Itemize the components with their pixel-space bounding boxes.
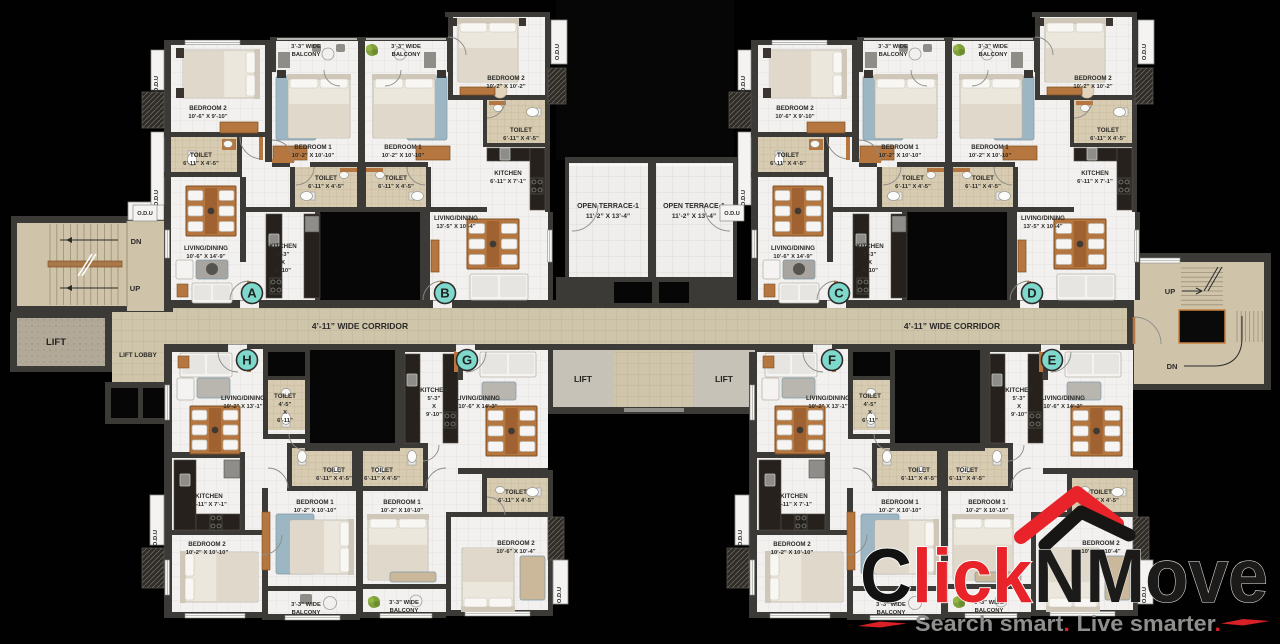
svg-text:5’-3”: 5’-3”	[1013, 396, 1026, 402]
svg-text:B: B	[440, 286, 449, 301]
svg-text:O.D.U: O.D.U	[738, 530, 744, 546]
svg-text:BALCONY: BALCONY	[292, 610, 321, 616]
svg-text:KITCHEN: KITCHEN	[195, 493, 223, 500]
svg-text:O.D.U: O.D.U	[555, 44, 561, 60]
svg-text:O.D.U: O.D.U	[154, 190, 160, 206]
svg-text:KITCHEN: KITCHEN	[420, 387, 448, 394]
svg-text:10’-6” X 14’-3”: 10’-6” X 14’-3”	[1043, 404, 1082, 410]
svg-text:TOILET: TOILET	[371, 467, 393, 474]
svg-text:3’-3” WIDE: 3’-3” WIDE	[878, 44, 908, 50]
svg-text:Search smart. Live smarter.: Search smart. Live smarter.	[915, 611, 1221, 636]
svg-text:BEDROOM 1: BEDROOM 1	[881, 499, 919, 506]
svg-text:10’-2” X 10’-10”: 10’-2” X 10’-10”	[969, 153, 1012, 159]
svg-text:F: F	[828, 353, 836, 368]
svg-text:BEDROOM 2: BEDROOM 2	[776, 105, 814, 112]
svg-text:D: D	[1027, 286, 1036, 301]
svg-text:6’-11” X 4’-5”: 6’-11” X 4’-5”	[183, 161, 219, 167]
svg-text:TOILET: TOILET	[1097, 127, 1119, 134]
svg-text:X: X	[1017, 404, 1021, 410]
svg-text:LIFT: LIFT	[574, 374, 593, 384]
svg-text:10’-6” X 14’-9”: 10’-6” X 14’-9”	[773, 254, 812, 260]
svg-text:X: X	[283, 410, 287, 416]
svg-text:O.D.U: O.D.U	[557, 587, 563, 603]
svg-text:UP: UP	[1165, 287, 1175, 296]
svg-text:BALCONY: BALCONY	[979, 52, 1008, 58]
svg-text:LIVING/DINING: LIVING/DINING	[434, 215, 478, 222]
svg-text:6’-11”: 6’-11”	[862, 418, 878, 424]
svg-text:TOILET: TOILET	[859, 393, 881, 400]
svg-text:9’-10”: 9’-10”	[275, 268, 291, 274]
svg-text:6’-11” X 4’-5”: 6’-11” X 4’-5”	[503, 136, 539, 142]
svg-text:3’-3” WIDE: 3’-3” WIDE	[291, 602, 321, 608]
svg-text:E: E	[1048, 353, 1057, 368]
svg-text:9’-10”: 9’-10”	[426, 412, 442, 418]
svg-text:TOILET: TOILET	[190, 152, 212, 159]
svg-text:LIVING/DINING: LIVING/DINING	[806, 395, 850, 402]
svg-text:6’-11” X 4’-5”: 6’-11” X 4’-5”	[901, 476, 937, 482]
svg-text:6’-11” X 4’-5”: 6’-11” X 4’-5”	[895, 184, 931, 190]
svg-text:X: X	[868, 410, 872, 416]
svg-text:TOILET: TOILET	[315, 175, 337, 182]
svg-text:10’-2” X 10’-10”: 10’-2” X 10’-10”	[381, 508, 424, 514]
svg-text:10’-6” X 9’-10”: 10’-6” X 9’-10”	[775, 114, 814, 120]
svg-text:10’-2” X 10’-10”: 10’-2” X 10’-10”	[382, 153, 425, 159]
svg-text:LIVING/DINING: LIVING/DINING	[456, 395, 500, 402]
svg-text:BEDROOM 1: BEDROOM 1	[881, 144, 919, 151]
svg-text:6’-11” X 7’-1”: 6’-11” X 7’-1”	[776, 502, 812, 508]
svg-text:LIVING/DINING: LIVING/DINING	[771, 245, 815, 252]
svg-text:C: C	[834, 286, 844, 301]
svg-text:5’-3”: 5’-3”	[428, 396, 441, 402]
svg-text:TOILET: TOILET	[956, 467, 978, 474]
svg-text:TOILET: TOILET	[510, 127, 532, 134]
svg-text:X: X	[868, 260, 872, 266]
svg-text:LIVING/DINING: LIVING/DINING	[1041, 395, 1085, 402]
svg-text:NMove: NMove	[1034, 534, 1268, 619]
svg-text:5’-3”: 5’-3”	[864, 252, 877, 258]
svg-text:6’-11” X 4’-5”: 6’-11” X 4’-5”	[316, 476, 352, 482]
svg-text:BEDROOM 2: BEDROOM 2	[773, 541, 811, 548]
svg-text:BEDROOM 1: BEDROOM 1	[296, 499, 334, 506]
svg-text:O.D.U: O.D.U	[153, 530, 159, 546]
svg-text:13’-5” X 10’-4”: 13’-5” X 10’-4”	[1023, 224, 1062, 230]
svg-text:6’-11” X 7’-1”: 6’-11” X 7’-1”	[490, 179, 526, 185]
svg-text:6’-11” X 7’-1”: 6’-11” X 7’-1”	[191, 502, 227, 508]
svg-text:4’-11” WIDE CORRIDOR: 4’-11” WIDE CORRIDOR	[312, 321, 408, 331]
svg-text:6’-11” X 4’-5”: 6’-11” X 4’-5”	[378, 184, 414, 190]
svg-text:LIVING/DINING: LIVING/DINING	[1021, 215, 1065, 222]
svg-text:11’-2” X 13’-4”: 11’-2” X 13’-4”	[672, 213, 716, 220]
svg-text:TOILET: TOILET	[274, 393, 296, 400]
svg-text:LIFT: LIFT	[46, 337, 66, 348]
svg-text:3’-3” WIDE: 3’-3” WIDE	[291, 44, 321, 50]
svg-text:BEDROOM 2: BEDROOM 2	[189, 105, 227, 112]
svg-text:TOILET: TOILET	[323, 467, 345, 474]
svg-text:LIFT: LIFT	[715, 374, 734, 384]
svg-text:TOILET: TOILET	[385, 175, 407, 182]
svg-text:10’-2” X 13’-1”: 10’-2” X 13’-1”	[223, 404, 262, 410]
svg-text:BEDROOM 1: BEDROOM 1	[294, 144, 332, 151]
svg-text:6’-11” X 4’-5”: 6’-11” X 4’-5”	[965, 184, 1001, 190]
svg-text:X: X	[281, 260, 285, 266]
svg-text:KITCHEN: KITCHEN	[1005, 387, 1033, 394]
svg-text:OPEN TERRACE-1: OPEN TERRACE-1	[577, 203, 639, 210]
svg-text:BALCONY: BALCONY	[879, 52, 908, 58]
svg-text:KITCHEN: KITCHEN	[856, 243, 884, 250]
svg-text:4’-5”: 4’-5”	[864, 402, 877, 408]
svg-text:Click: Click	[860, 534, 1033, 619]
svg-text:10’-2” X 10’-10”: 10’-2” X 10’-10”	[879, 153, 922, 159]
svg-text:O.D.U: O.D.U	[137, 211, 153, 217]
svg-text:KITCHEN: KITCHEN	[269, 243, 297, 250]
svg-text:O.D.U: O.D.U	[154, 76, 160, 92]
svg-text:13’-5” X 10’-4”: 13’-5” X 10’-4”	[436, 224, 475, 230]
svg-text:KITCHEN: KITCHEN	[1081, 170, 1109, 177]
svg-text:TOILET: TOILET	[777, 152, 799, 159]
svg-text:4’-11” WIDE CORRIDOR: 4’-11” WIDE CORRIDOR	[904, 321, 1000, 331]
svg-text:A: A	[247, 286, 257, 301]
svg-text:5’-3”: 5’-3”	[277, 252, 290, 258]
svg-text:6’-11” X 4’-5”: 6’-11” X 4’-5”	[308, 184, 344, 190]
svg-text:6’-11” X 4’-5”: 6’-11” X 4’-5”	[1090, 136, 1126, 142]
svg-text:6’-11” X 4’-5”: 6’-11” X 4’-5”	[364, 476, 400, 482]
svg-text:10’-2” X 10’-10”: 10’-2” X 10’-10”	[294, 508, 337, 514]
svg-text:11’-2” X 13’-4”: 11’-2” X 13’-4”	[586, 213, 630, 220]
svg-text:10’-2” X 10’-10”: 10’-2” X 10’-10”	[771, 550, 814, 556]
svg-text:DN: DN	[131, 237, 142, 246]
svg-text:BALCONY: BALCONY	[392, 52, 421, 58]
svg-text:O.D.U: O.D.U	[741, 76, 747, 92]
svg-text:10’-2” X 10’-2”: 10’-2” X 10’-2”	[1073, 84, 1112, 90]
svg-text:O.D.U: O.D.U	[724, 211, 740, 217]
svg-text:3’-3” WIDE: 3’-3” WIDE	[391, 44, 421, 50]
svg-text:3’-3” WIDE: 3’-3” WIDE	[978, 44, 1008, 50]
svg-text:LIFT LOBBY: LIFT LOBBY	[119, 352, 157, 359]
svg-text:BALCONY: BALCONY	[292, 52, 321, 58]
svg-text:KITCHEN: KITCHEN	[494, 170, 522, 177]
svg-text:TOILET: TOILET	[902, 175, 924, 182]
svg-text:BEDROOM 1: BEDROOM 1	[384, 144, 422, 151]
svg-text:TOILET: TOILET	[972, 175, 994, 182]
svg-text:10’-6” X 14’-9”: 10’-6” X 14’-9”	[186, 254, 225, 260]
svg-text:LIVING/DINING: LIVING/DINING	[221, 395, 265, 402]
svg-text:O.D.U: O.D.U	[741, 190, 747, 206]
svg-text:LIVING/DINING: LIVING/DINING	[184, 245, 228, 252]
svg-text:X: X	[432, 404, 436, 410]
svg-text:6’-11” X 7’-1”: 6’-11” X 7’-1”	[1077, 179, 1113, 185]
svg-text:10’-2” X 10’-2”: 10’-2” X 10’-2”	[486, 84, 525, 90]
svg-text:DN: DN	[1167, 362, 1178, 371]
svg-text:O.D.U: O.D.U	[1142, 44, 1148, 60]
svg-text:BEDROOM 1: BEDROOM 1	[971, 144, 1009, 151]
svg-text:BALCONY: BALCONY	[390, 608, 419, 614]
svg-text:9’-10”: 9’-10”	[1011, 412, 1027, 418]
svg-text:BEDROOM 2: BEDROOM 2	[188, 541, 226, 548]
svg-text:10’-6” X 14’-3”: 10’-6” X 14’-3”	[458, 404, 497, 410]
svg-text:4’-5”: 4’-5”	[279, 402, 292, 408]
svg-text:BEDROOM 2: BEDROOM 2	[1074, 75, 1112, 82]
svg-text:TOILET: TOILET	[1090, 489, 1112, 496]
svg-text:10’-2” X 13’-1”: 10’-2” X 13’-1”	[808, 404, 847, 410]
svg-text:UP: UP	[130, 284, 140, 293]
svg-text:TOILET: TOILET	[908, 467, 930, 474]
svg-text:10’-2” X 10’-10”: 10’-2” X 10’-10”	[186, 550, 229, 556]
svg-text:OPEN TERRACE-1: OPEN TERRACE-1	[663, 203, 725, 210]
svg-text:6’-11” X 4’-5”: 6’-11” X 4’-5”	[770, 161, 806, 167]
svg-text:BEDROOM 1: BEDROOM 1	[968, 499, 1006, 506]
svg-text:H: H	[242, 353, 251, 368]
svg-text:BEDROOM 1: BEDROOM 1	[383, 499, 421, 506]
svg-text:TOILET: TOILET	[505, 489, 527, 496]
svg-text:6’-11”: 6’-11”	[277, 418, 293, 424]
svg-text:KITCHEN: KITCHEN	[780, 493, 808, 500]
svg-text:10’-2” X 10’-10”: 10’-2” X 10’-10”	[292, 153, 335, 159]
svg-text:10’-6” X 9’-10”: 10’-6” X 9’-10”	[188, 114, 227, 120]
svg-text:6’-11” X 4’-5”: 6’-11” X 4’-5”	[498, 498, 534, 504]
svg-text:G: G	[462, 353, 472, 368]
svg-text:BEDROOM 2: BEDROOM 2	[487, 75, 525, 82]
svg-text:BEDROOM 2: BEDROOM 2	[497, 540, 535, 547]
svg-text:10’-2” X 10’-10”: 10’-2” X 10’-10”	[879, 508, 922, 514]
svg-text:9’-10”: 9’-10”	[862, 268, 878, 274]
svg-text:10’-6” X 10’-4”: 10’-6” X 10’-4”	[496, 549, 535, 555]
svg-text:6’-11” X 4’-5”: 6’-11” X 4’-5”	[949, 476, 985, 482]
svg-text:10’-2” X 10’-10”: 10’-2” X 10’-10”	[966, 508, 1009, 514]
svg-text:3’-3” WIDE: 3’-3” WIDE	[389, 600, 419, 606]
